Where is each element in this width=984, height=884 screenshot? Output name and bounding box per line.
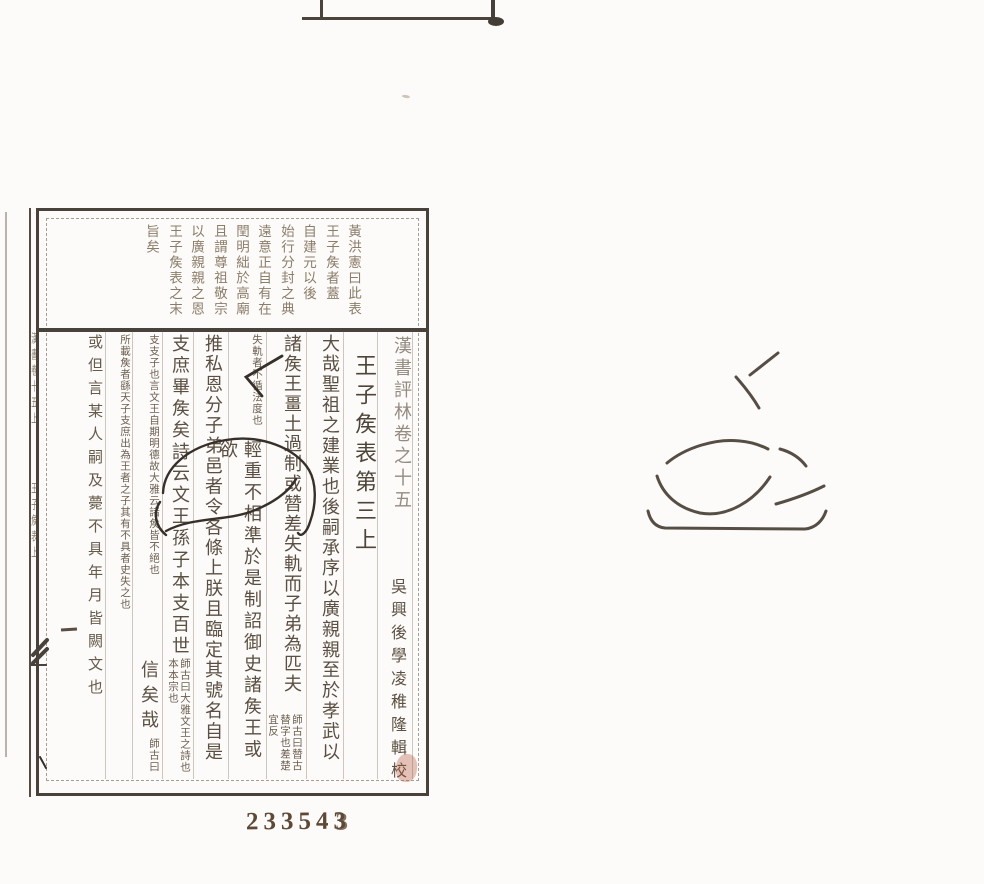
column-separator xyxy=(266,331,267,779)
doodle-oval-right-arc xyxy=(780,449,806,466)
margin-note-column: 黃洪憲曰此表 xyxy=(343,224,363,317)
page-fold-line xyxy=(5,212,7,757)
previous-page-edge-line xyxy=(302,17,496,20)
text-segment: 支支子也言文王自期明德故大雅云諸矦皆不絕也 xyxy=(136,334,160,660)
column-separator xyxy=(412,331,413,779)
margin-note-column: 且謂尊祖敬宗 xyxy=(209,224,229,317)
text-column: 或但言某人嗣及薨不具年月皆闕文也 xyxy=(86,334,104,734)
stamp-last-digit: 3 xyxy=(333,808,351,835)
scan-canvas: 漢書卷十五上 王子矦表上 黃洪憲曰此表王子矦者蓋自建元以後始行分封之典遠意正自有… xyxy=(0,0,984,884)
margin-note-column: 閏明絀於高廟 xyxy=(231,224,251,317)
column-separator xyxy=(132,331,133,779)
margin-note-column: 王子矦表之末 xyxy=(164,224,184,317)
previous-page-tick xyxy=(320,0,323,19)
doodle-oval-bottom-arc xyxy=(657,476,770,514)
book-title: 漢書評林卷之十五 xyxy=(388,336,414,512)
margin-note-column: 始行分封之典 xyxy=(276,224,296,317)
text-column: 失軌者不循法度也輕重不相準於是制詔御史諸矦王或欲 xyxy=(239,334,263,782)
margin-note-column: 旨矣 xyxy=(141,224,161,255)
text-segment: 所載矦者繇天子支庶出為王者之子其有不具者史失之也 xyxy=(107,334,131,780)
text-segment: 輕重不相準於是制詔御史諸矦王或欲 xyxy=(239,440,263,782)
text-column: 諸矦王畺土過制或㬱差失軌而子弟為匹夫師古曰㬱古替字也差楚宜反 xyxy=(279,334,303,780)
text-column: 推私恩分子弟邑者令各條上朕且臨定其號名自是 xyxy=(200,334,224,782)
column-separator xyxy=(105,331,106,779)
column-separator xyxy=(193,331,194,779)
text-segment: 失軌者不循法度也 xyxy=(239,334,263,440)
library-stamp-number: 233543 xyxy=(246,808,351,837)
ink-blob xyxy=(488,17,504,26)
text-segment: 支庶畢矦矣詩云文王孫子本支百世 xyxy=(167,334,191,658)
text-segment: 師古曰㬱古替字也差楚宜反 xyxy=(279,714,303,780)
text-segment: 信矣哉 xyxy=(136,660,160,738)
text-segment: 或但言某人嗣及薨不具年月皆闕文也 xyxy=(86,334,104,734)
doodle-bottom-slash xyxy=(776,486,824,504)
text-segment: 大哉聖祖之建業也後嗣承序以廣親親至於孝武以 xyxy=(317,334,341,782)
text-segment: 師古曰 xyxy=(136,738,160,780)
margin-note-column: 王子矦者蓋 xyxy=(321,224,341,302)
column-separator xyxy=(162,331,163,779)
text-block-top-rule xyxy=(36,328,429,332)
doodle-oval-top-arc xyxy=(667,440,768,463)
doodle-base-dish xyxy=(648,511,826,529)
doodle-stem-stroke xyxy=(736,377,759,408)
doodle-top-slash xyxy=(750,353,778,375)
stamp-prefix: 23354 xyxy=(246,808,334,836)
column-separator xyxy=(343,331,344,779)
text-segment: 推私恩分子弟邑者令各條上朕且臨定其號名自是 xyxy=(200,334,224,782)
margin-note-column: 遠意正自有在 xyxy=(253,224,273,317)
text-segment: 師古曰大雅文王之詩也本本宗也 xyxy=(167,658,191,780)
column-separator xyxy=(377,331,378,779)
text-column: 所載矦者繇天子支庶出為王者之子其有不具者史失之也 xyxy=(107,334,131,780)
text-column: 大哉聖祖之建業也後嗣承序以廣親親至於孝武以 xyxy=(317,334,341,782)
text-column: 支支子也言文王自期明德故大雅云諸矦皆不絕也信矣哉師古曰 xyxy=(136,334,160,780)
text-segment: 諸矦王畺土過制或㬱差失軌而子弟為匹夫 xyxy=(279,334,303,714)
margin-note-column: 以廣親親之恩 xyxy=(186,224,206,317)
section-title: 王子矦表第三上 xyxy=(347,354,379,557)
hand-doodle-sketch xyxy=(630,330,850,545)
paper-speck xyxy=(402,94,410,98)
text-column: 支庶畢矦矣詩云文王孫子本支百世師古曰大雅文王之詩也本本宗也 xyxy=(167,334,191,780)
column-separator xyxy=(306,331,307,779)
column-separator xyxy=(228,331,229,779)
margin-note-column: 自建元以後 xyxy=(298,224,318,302)
